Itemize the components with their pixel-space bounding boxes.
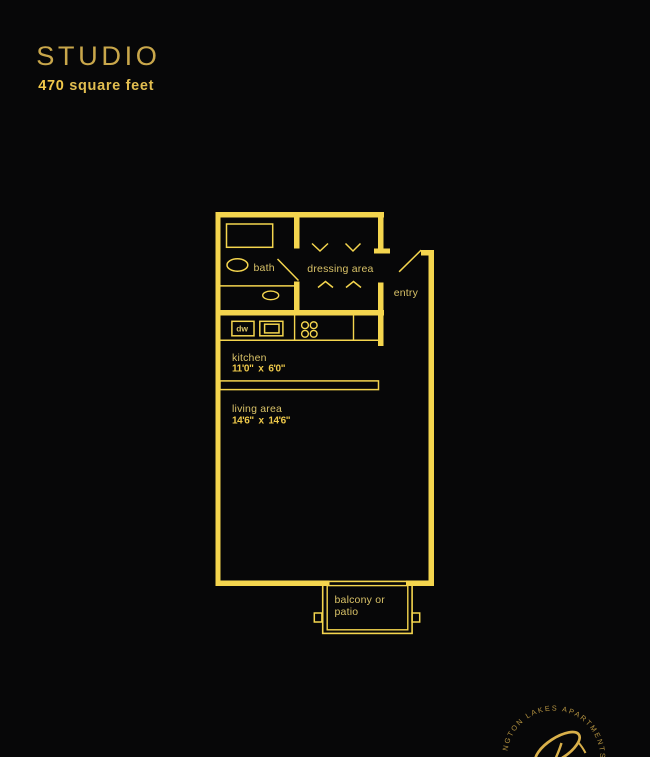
svg-text:balcony or: balcony or <box>335 594 386 606</box>
svg-text:entry: entry <box>394 287 419 299</box>
svg-text:living area: living area <box>232 403 282 415</box>
svg-text:dw: dw <box>236 324 248 334</box>
svg-text:STUDIO: STUDIO <box>36 40 160 71</box>
svg-text:patio: patio <box>335 606 359 618</box>
svg-text:bath: bath <box>254 262 275 274</box>
svg-text:dressing area: dressing area <box>307 263 373 275</box>
svg-text:470 square feet: 470 square feet <box>38 78 154 94</box>
svg-text:kitchen: kitchen <box>232 352 267 364</box>
svg-text:NGTON LAKES APARTMENTS: NGTON LAKES APARTMENTS <box>501 704 608 757</box>
svg-text:11'0" x 6'0": 11'0" x 6'0" <box>232 363 286 374</box>
svg-text:14'6" x 14'6": 14'6" x 14'6" <box>232 416 291 427</box>
